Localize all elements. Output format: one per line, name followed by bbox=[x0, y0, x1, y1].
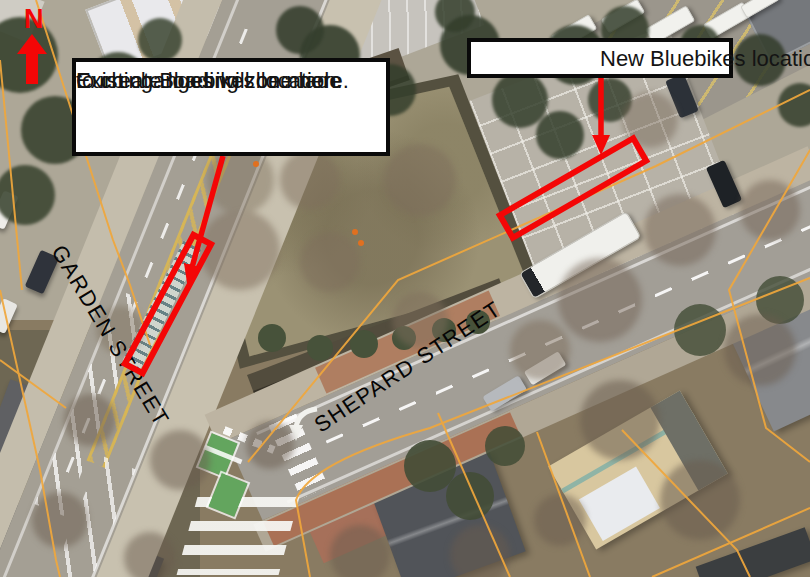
aerial-map: GARDEN STREET SHEPARD STREET N Existing … bbox=[0, 0, 810, 577]
bare-trees bbox=[200, 210, 280, 290]
zebra-crosswalk bbox=[177, 497, 300, 575]
callout-line: to create loading zone here. bbox=[76, 66, 349, 96]
callout-new-location: New Bluebikes location bbox=[467, 38, 733, 78]
hedges bbox=[258, 324, 286, 352]
callout-existing-location: Existing Bluebikes location. Curb change… bbox=[72, 58, 390, 156]
callout-line: New Bluebikes location bbox=[600, 42, 810, 75]
north-arrow-icon bbox=[16, 34, 48, 86]
traffic-cone bbox=[253, 161, 259, 167]
traffic-cone bbox=[358, 240, 364, 246]
north-label: N bbox=[24, 4, 44, 35]
traffic-cone bbox=[352, 229, 358, 235]
